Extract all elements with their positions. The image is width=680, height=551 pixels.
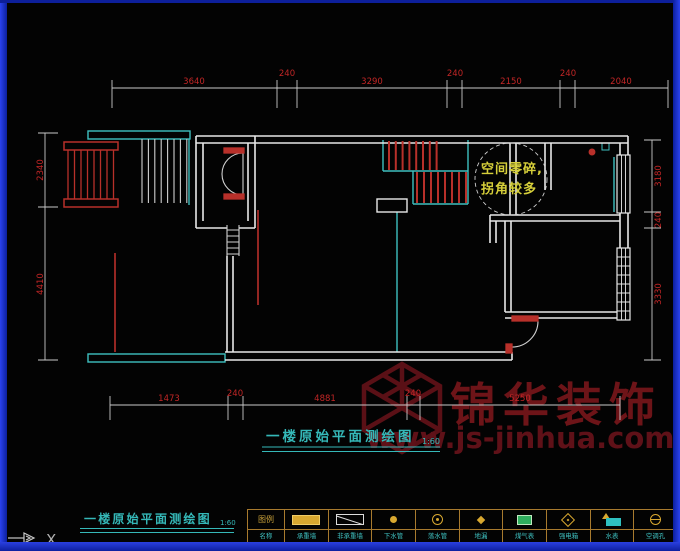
outdoor-stair-top-bar <box>64 142 118 150</box>
footer-drawing-title: 一楼原始平面测绘图 1:60 <box>80 511 236 533</box>
footer-title-text: 一楼原始平面测绘图 <box>84 511 212 526</box>
legend-table: 图例 名称 承重墙 非承重墙 下水管 落水管 地漏 煤气表 强电箱 水表 空调孔 <box>247 509 678 543</box>
window-1 <box>617 155 630 213</box>
legend-label: 下水管 <box>384 531 403 540</box>
cad-drawing-frame: 锦华装饰 www.js-jinhua.com 3640 240 3290 240… <box>0 0 680 551</box>
dim-bottom-4: 240 <box>405 389 421 399</box>
legend-label: 落水管 <box>428 531 447 540</box>
load-bearing-wall-icon <box>292 515 320 525</box>
dim-top-6: 240 <box>560 69 576 79</box>
legend-label: 煤气表 <box>515 531 534 540</box>
legend-label-cell: 空调孔 <box>633 530 677 542</box>
legend-label-cell: 水表 <box>590 530 634 542</box>
plan-title-scale: 1:60 <box>422 437 440 446</box>
legend-label-cell: 强电箱 <box>546 530 590 542</box>
annotation-line2: 拐角较多 <box>481 181 537 197</box>
ac-hole-icon <box>650 514 661 525</box>
dim-top-1: 3640 <box>183 77 205 87</box>
terrace-edge-bottom <box>88 354 225 362</box>
room-annotation: 空间零碎, 拐角较多 <box>481 161 543 197</box>
door-swing-arc <box>511 321 538 347</box>
legend-label-cell: 下水管 <box>371 530 415 542</box>
frame-edge-top <box>0 0 680 3</box>
legend-label: 承重墙 <box>297 531 316 540</box>
frame-edge-left <box>0 0 7 551</box>
frame-edge-right <box>673 0 680 551</box>
dim-left-1: 2340 <box>36 159 46 181</box>
legend-label: 非承重墙 <box>337 531 363 540</box>
legend-item-downpipe <box>371 510 415 530</box>
wall-marker <box>602 143 609 150</box>
legend-header-bottom: 名称 <box>260 531 273 540</box>
legend-label: 地漏 <box>475 531 488 540</box>
dim-top-5: 2150 <box>500 77 522 87</box>
power-box-icon <box>561 512 575 526</box>
left-inner-wall <box>227 256 233 352</box>
door-hinge <box>506 344 512 353</box>
legend-item-floordrain <box>459 510 503 530</box>
wall-hatch <box>227 225 239 256</box>
outdoor-stair-white <box>142 139 187 203</box>
annotation-circle <box>475 143 547 215</box>
walls <box>196 136 630 360</box>
dim-bottom-1: 1473 <box>158 394 180 404</box>
dim-top-2: 240 <box>279 69 295 79</box>
dim-bottom-3: 4881 <box>314 394 336 404</box>
outdoor-stair-bottom-bar <box>64 199 118 207</box>
legend-item-achole <box>633 510 677 530</box>
gas-meter-icon <box>517 515 532 525</box>
dim-left-2: 4410 <box>36 273 46 295</box>
dim-right-1: 3180 <box>654 165 664 187</box>
dim-bottom-5: 5250 <box>509 394 531 404</box>
plan-title-text: 一楼原始平面测绘图 <box>266 428 415 445</box>
legend-label-cell: 落水管 <box>415 530 459 542</box>
floor-drain-icon <box>477 515 485 523</box>
legend-item-nlb-wall <box>328 510 372 530</box>
balcony-edge-top <box>88 131 190 139</box>
door-sill-right <box>512 316 538 321</box>
legend-header-cell: 图例 <box>248 510 284 530</box>
legend-item-powerbox <box>546 510 590 530</box>
stair-treads-upper <box>389 141 437 170</box>
column <box>377 199 407 212</box>
footer-title-scale: 1:60 <box>220 519 236 527</box>
legend-label-cell: 非承重墙 <box>328 530 372 542</box>
dim-right-3: 3330 <box>654 283 664 305</box>
water-meter-icon <box>602 513 621 526</box>
legend-label: 水表 <box>606 531 619 540</box>
room-wall-c <box>505 221 511 312</box>
room-wall-b <box>545 143 551 190</box>
dim-top-7: 2040 <box>610 77 632 87</box>
legend-header-top: 图例 <box>258 514 274 525</box>
legend-item-rainpipe <box>415 510 459 530</box>
legend-label-cell: 承重墙 <box>284 530 328 542</box>
pipe-dot <box>589 149 595 155</box>
legend-label-cell: 地漏 <box>459 530 503 542</box>
door-sill-bottom <box>224 194 244 199</box>
annotation-line1: 空间零碎, <box>481 161 543 177</box>
legend-item-gasmeter <box>502 510 546 530</box>
dim-bottom-2: 240 <box>227 389 243 399</box>
dim-top-4: 240 <box>447 69 463 79</box>
mid-wall <box>490 215 620 243</box>
double-door-leaves <box>222 153 243 195</box>
room-wall-a <box>510 143 516 215</box>
frame-edge-bottom <box>0 542 680 551</box>
down-pipe-icon <box>390 516 397 523</box>
legend-label: 空调孔 <box>646 531 665 540</box>
legend-item-wall <box>284 510 328 530</box>
legend-header-bottom-cell: 名称 <box>248 530 284 542</box>
bottom-wall <box>225 352 512 360</box>
non-load-bearing-wall-icon <box>336 514 364 525</box>
dim-right-2: 240 <box>654 212 664 228</box>
legend-label: 强电箱 <box>559 531 578 540</box>
stair-treads-lower <box>417 172 466 203</box>
door-sill-top <box>224 148 244 153</box>
outdoor-stair-treads <box>68 150 114 199</box>
legend-label-cell: 煤气表 <box>502 530 546 542</box>
legend-item-watermeter <box>590 510 634 530</box>
floorplan-canvas: 锦华装饰 www.js-jinhua.com 3640 240 3290 240… <box>0 0 680 551</box>
footer-title-underline <box>80 529 234 533</box>
rain-pipe-icon <box>432 514 443 525</box>
top-wall <box>196 136 628 143</box>
dim-top-3: 3290 <box>361 77 383 87</box>
